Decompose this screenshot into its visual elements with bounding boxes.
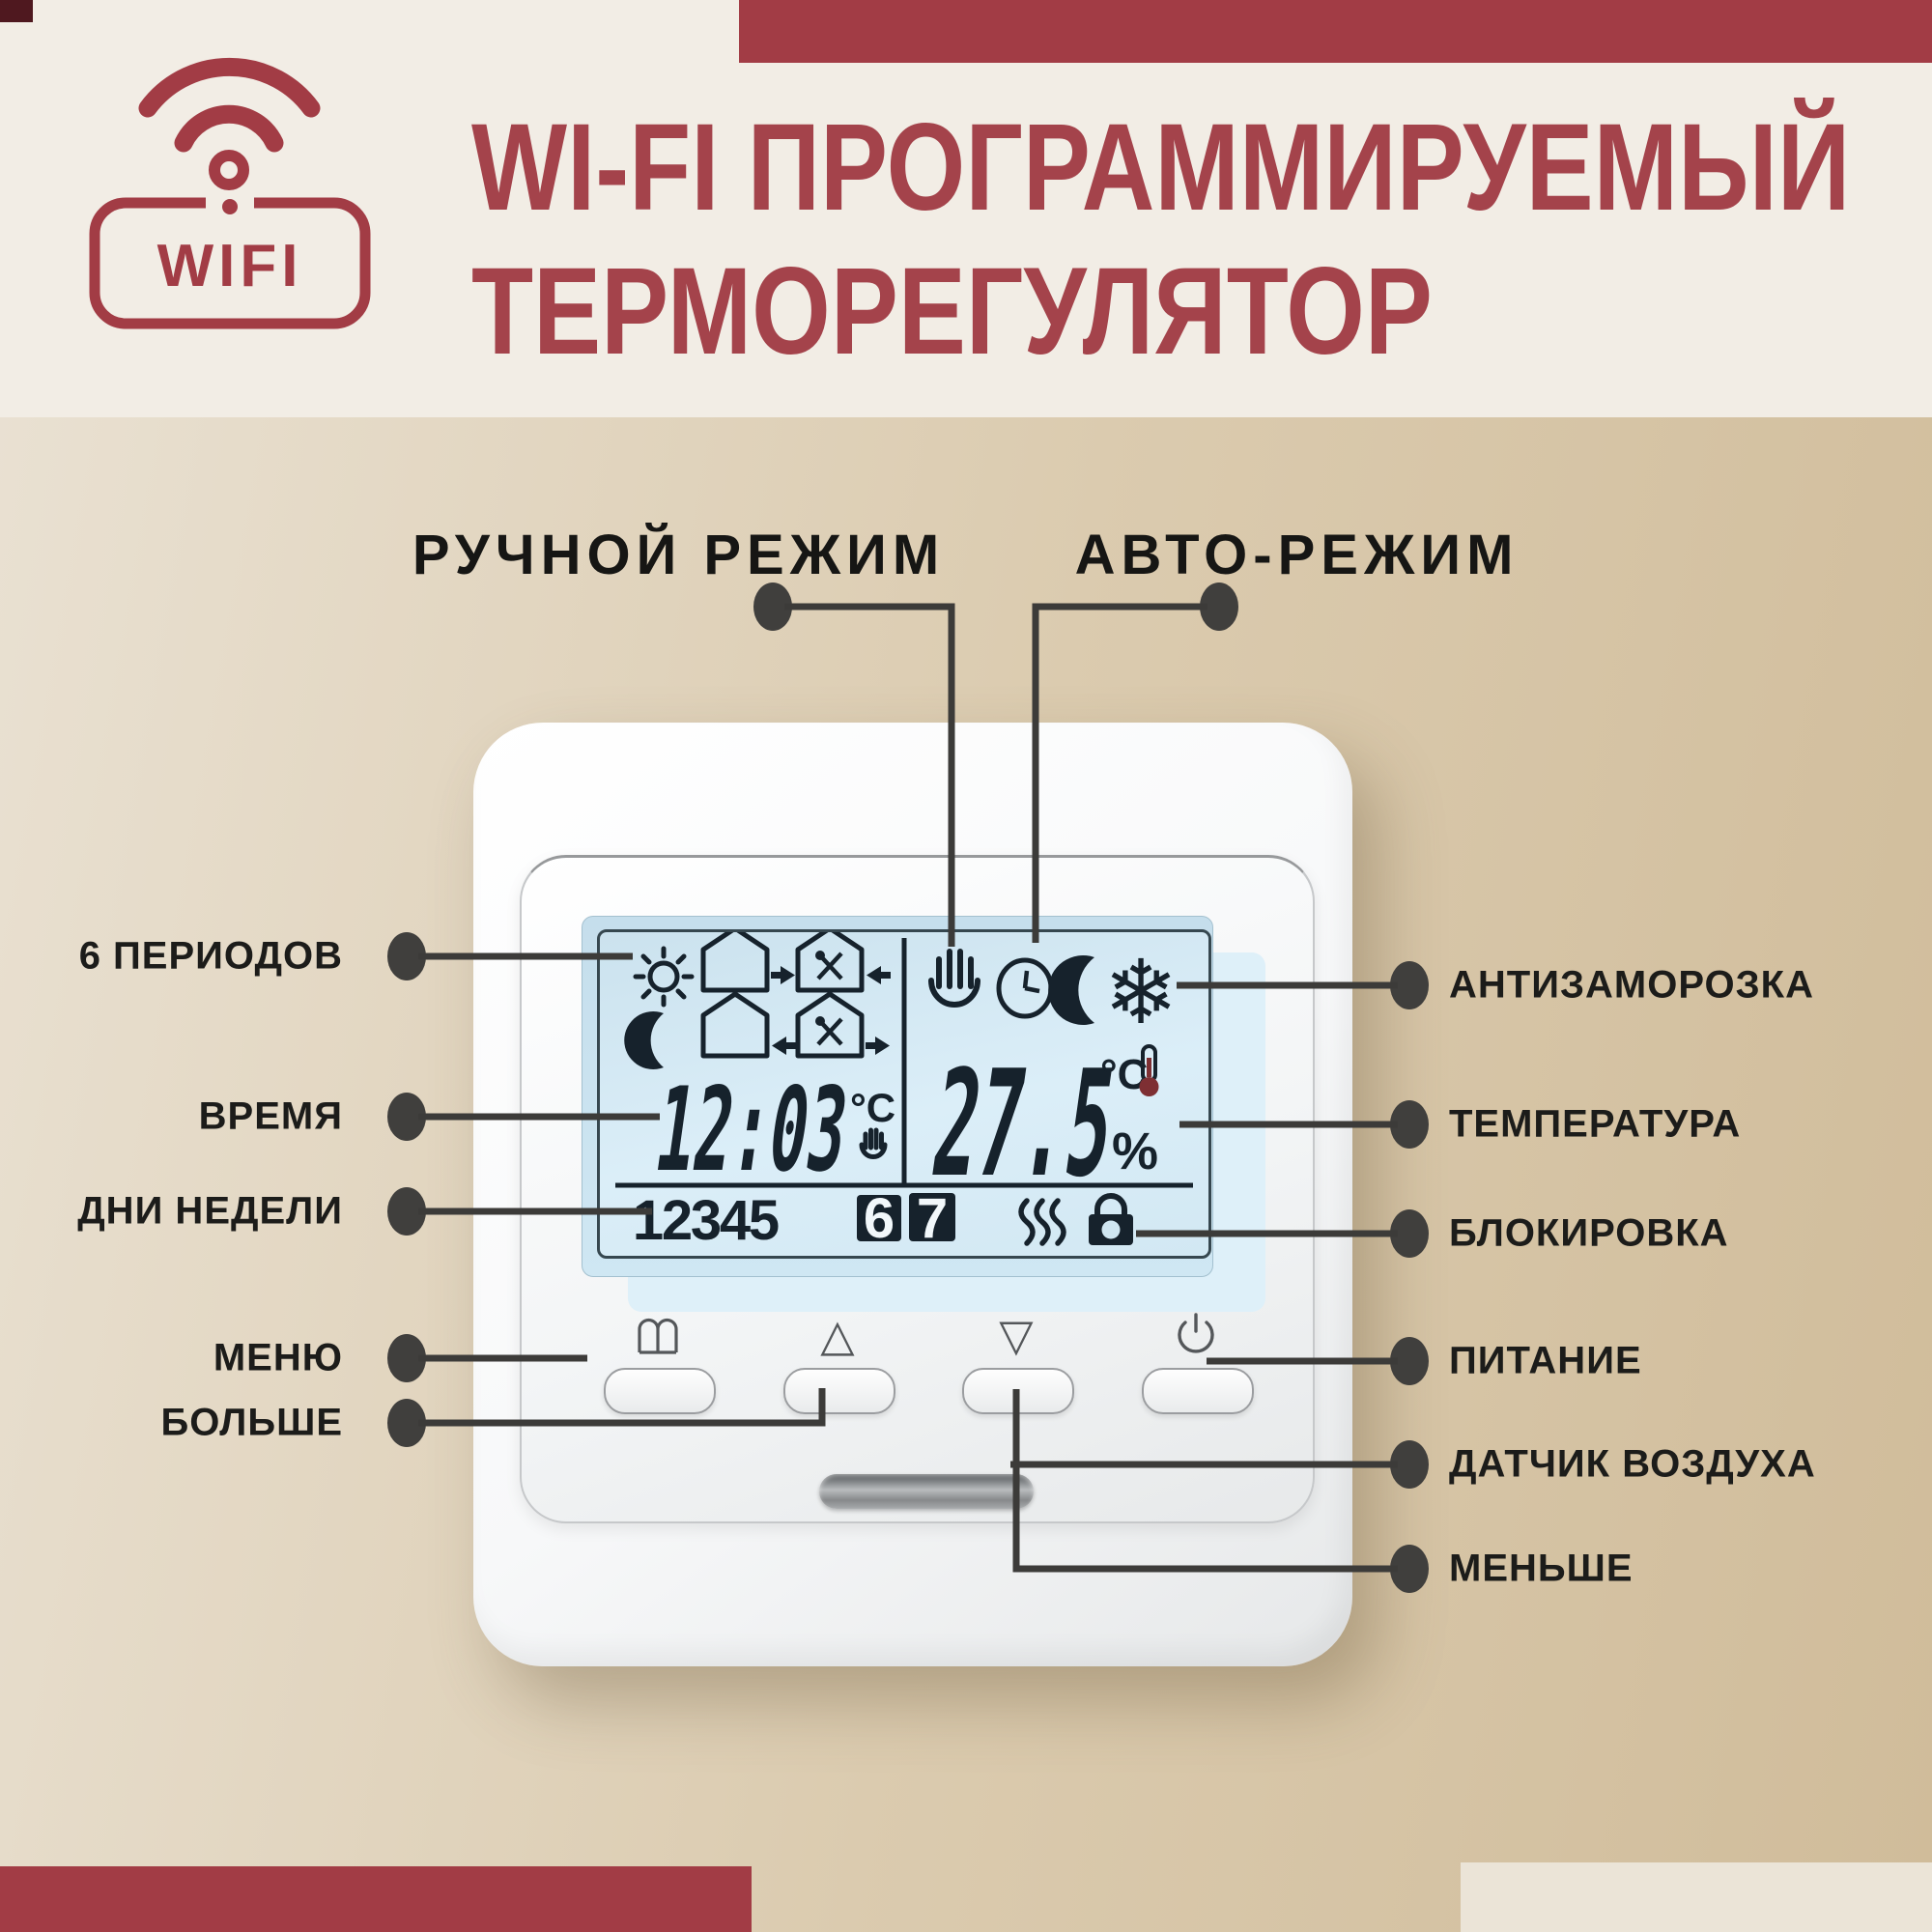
- page-title-line2: ТЕРМОРЕГУЛЯТОР: [471, 240, 1850, 384]
- down-button[interactable]: [962, 1368, 1074, 1414]
- label-weekdays: ДНИ НЕДЕЛИ: [77, 1190, 343, 1234]
- moon-icon: [624, 1011, 664, 1069]
- header-accent-bar: [739, 0, 1932, 63]
- house-dining-leave-icon: [798, 994, 890, 1056]
- day-6: 6: [864, 1187, 895, 1250]
- label-air-sensor: ДАТЧИК ВОЗДУХА: [1449, 1443, 1816, 1487]
- label-power: ПИТАНИЕ: [1449, 1340, 1642, 1383]
- thermostat-device: ❄ 12:03 °C 27.5 °C: [473, 723, 1352, 1666]
- snowflake-icon: ❄: [1103, 944, 1178, 1042]
- header: WIFI WI-FI ПРОГРАММИРУЕМЫЙ ТЕРМОРЕГУЛЯТО…: [0, 0, 1932, 417]
- menu-book-icon: [604, 1310, 712, 1360]
- arrow-up-icon: △: [783, 1310, 892, 1360]
- day-1: 1: [633, 1189, 664, 1252]
- power-button[interactable]: [1142, 1368, 1254, 1414]
- manual-mode-label: РУЧНОЙ РЕЖИМ: [377, 523, 980, 587]
- svg-text:12:03: 12:03: [648, 1063, 856, 1198]
- bottom-accent-bar: [0, 1866, 752, 1932]
- thermometer-icon: [1140, 1046, 1159, 1096]
- label-6-periods: 6 ПЕРИОДОВ: [79, 935, 343, 979]
- menu-button[interactable]: [604, 1368, 716, 1414]
- lcd-temperature: 27.5: [923, 1038, 1124, 1209]
- day-5: 5: [749, 1189, 780, 1252]
- auto-mode-label: АВТО-РЕЖИМ: [1043, 523, 1550, 587]
- house-leave-icon: [703, 932, 795, 990]
- page-title-line1: WI-FI ПРОГРАММИРУЕМЫЙ: [471, 96, 1850, 240]
- label-antifreeze: АНТИЗАМОРОЗКА: [1449, 964, 1814, 1008]
- svg-text:27.5: 27.5: [923, 1038, 1124, 1209]
- house-dining-return-icon: [798, 932, 891, 990]
- lcd-display: ❄ 12:03 °C 27.5 °C: [597, 929, 1211, 1259]
- air-sensor-slot: [819, 1474, 1034, 1509]
- lcd-percent: %: [1112, 1122, 1158, 1180]
- corner-decor-square: [0, 0, 33, 22]
- arrow-down-icon: ▽: [962, 1310, 1070, 1360]
- lcd-time-unit: °C: [850, 1085, 895, 1130]
- up-button[interactable]: [783, 1368, 895, 1414]
- wifi-badge-label: WIFI: [157, 233, 303, 299]
- label-temperature: ТЕМПЕРАТУРА: [1449, 1103, 1741, 1147]
- day-2: 2: [662, 1189, 693, 1252]
- lcd-time: 12:03: [648, 1063, 856, 1198]
- infographic-page: WIFI WI-FI ПРОГРАММИРУЕМЫЙ ТЕРМОРЕГУЛЯТО…: [0, 0, 1932, 1932]
- label-more: БОЛЬШЕ: [160, 1402, 343, 1445]
- house-return-icon: [703, 994, 796, 1056]
- lcd-small-hand-icon: [862, 1130, 885, 1157]
- label-menu: МЕНЮ: [213, 1337, 343, 1380]
- power-icon: [1142, 1310, 1250, 1360]
- day-7: 7: [917, 1187, 948, 1250]
- label-time: ВРЕМЯ: [199, 1095, 343, 1139]
- clock-auto-icon: [999, 960, 1051, 1016]
- sun-icon: [636, 949, 692, 1005]
- hand-manual-icon: [931, 952, 978, 1005]
- bottom-corner-block: [1461, 1862, 1932, 1932]
- label-less: МЕНЬШЕ: [1449, 1548, 1634, 1591]
- page-title: WI-FI ПРОГРАММИРУЕМЫЙ ТЕРМОРЕГУЛЯТОР: [471, 96, 1850, 384]
- night-moon-icon: [1048, 955, 1094, 1025]
- wifi-logo-icon: WIFI: [77, 39, 386, 338]
- day-4: 4: [720, 1189, 751, 1252]
- day-3: 3: [691, 1189, 722, 1252]
- label-lock: БЛОКИРОВКА: [1449, 1212, 1729, 1256]
